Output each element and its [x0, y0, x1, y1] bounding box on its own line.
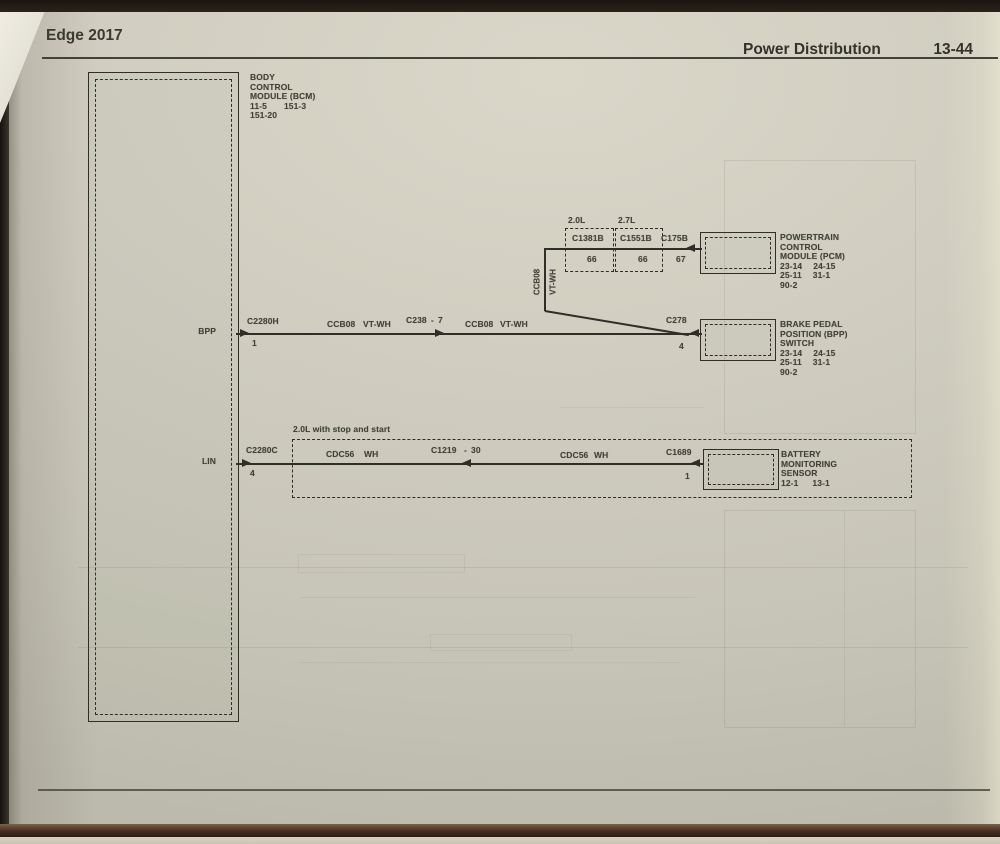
bcm-inner-dashed	[95, 79, 232, 715]
engine1-option-label: 2.0L	[568, 216, 585, 226]
c1689-pin: 1	[685, 472, 690, 482]
lin-seg1-circuit: CDC56	[326, 450, 354, 460]
bpp-pin-label: 1	[252, 339, 257, 349]
pcm-ref: 90-2	[780, 281, 845, 291]
engine2-option-label: 2.7L	[618, 216, 635, 226]
ghost-box	[724, 510, 916, 728]
c1551b-label: C1551B	[620, 234, 652, 244]
battery-sensor-ref: 13-1	[812, 479, 829, 489]
lin-seg1-color: WH	[364, 450, 378, 460]
battery-sensor-ref: 12-1	[781, 479, 798, 489]
bcm-bpp-connector-arrow	[240, 329, 249, 337]
bcm-ref: 151-3	[284, 102, 306, 112]
battery-sensor-label: BATTERY MONITORING SENSOR 12-1 13-1	[781, 450, 837, 488]
bpp-wire	[236, 333, 702, 335]
page-number: 13-44	[933, 41, 973, 59]
bpp-seg2-circuit: CCB08	[465, 320, 493, 330]
c1219-pin: 30	[471, 446, 481, 456]
c278-label: C278	[666, 316, 687, 326]
stop-start-option-label: 2.0L with stop and start	[293, 425, 390, 435]
ghost-box	[724, 160, 916, 434]
footer-rule	[38, 789, 990, 791]
pcm-branch-vertical-wire	[544, 249, 546, 311]
photo-background-top	[0, 0, 1000, 12]
c278-connector-arrow	[690, 329, 699, 337]
c238-sep: -	[431, 316, 434, 326]
bpp-switch-ref: 31-1	[813, 358, 830, 368]
book-binding-shadow	[0, 0, 9, 844]
bpp-connector-label: C2280H	[247, 317, 279, 327]
c1689-label: C1689	[666, 448, 692, 458]
c1219-label: C1219	[431, 446, 457, 456]
pcm-box	[700, 232, 776, 274]
pcm-branch-circuit-vertical: CCB08	[533, 269, 542, 295]
ghost-line	[300, 662, 680, 663]
c238-connector-arrow	[435, 329, 444, 337]
c1219-sep: -	[464, 446, 467, 456]
c1689-connector-arrow	[691, 459, 700, 467]
bpp-switch-inner-dashed	[705, 324, 771, 356]
ghost-box	[430, 634, 572, 651]
pcm-label: POWERTRAIN CONTROL MODULE (PCM) 23-14 24…	[780, 233, 845, 291]
battery-sensor-refs: 12-1 13-1	[781, 479, 837, 489]
ghost-line	[560, 407, 705, 408]
lin-seg2-circuit: CDC56	[560, 451, 588, 461]
c1381b-pin: 66	[587, 255, 597, 265]
ghost-line	[844, 510, 845, 726]
bcm-pin-lin-label: LIN	[178, 457, 216, 467]
c238-label: C238	[406, 316, 427, 326]
lin-seg2-color: WH	[594, 451, 608, 461]
ghost-box	[298, 554, 465, 573]
bcm-ref: 151-20	[250, 111, 315, 121]
page-bottom-edge-shadow	[0, 824, 1000, 837]
pcm-branch-color-vertical: VT-WH	[549, 269, 558, 295]
lin-pin-label: 4	[250, 469, 255, 479]
battery-sensor-box	[703, 449, 779, 490]
bcm-label: BODY CONTROL MODULE (BCM) 11-5 151-3 151…	[250, 73, 315, 121]
bpp-seg2-color: VT-WH	[500, 320, 528, 330]
header-right: Power Distribution 13-44	[743, 41, 973, 59]
c1551b-pin: 66	[638, 255, 648, 265]
bcm-pin-bpp-label: BPP	[178, 327, 216, 337]
bpp-seg1-circuit: CCB08	[327, 320, 355, 330]
photo-of-manual-page: { "photo": { "paper_color": "#cfccc0", "…	[0, 0, 1000, 844]
surface-below-page	[0, 837, 1000, 844]
page-title: Edge 2017	[46, 27, 123, 45]
section-title: Power Distribution	[743, 41, 881, 59]
pcm-ref: 31-1	[813, 271, 830, 281]
c238-pin: 7	[438, 316, 443, 326]
c278-pin: 4	[679, 342, 684, 352]
c175b-pin: 67	[676, 255, 686, 265]
manual-page: Edge 2017 Power Distribution 13-44 BODY …	[8, 10, 1000, 826]
c1381b-label: C1381B	[572, 234, 604, 244]
bpp-switch-label: BRAKE PEDAL POSITION (BPP) SWITCH 23-14 …	[780, 320, 848, 378]
ghost-line	[300, 597, 695, 598]
bpp-seg1-color: VT-WH	[363, 320, 391, 330]
lin-connector-label: C2280C	[246, 446, 278, 456]
pcm-inner-dashed	[705, 237, 771, 269]
bpp-switch-ref: 90-2	[780, 368, 848, 378]
battery-sensor-inner-dashed	[708, 454, 774, 485]
bpp-switch-box	[700, 319, 776, 361]
c175b-label: C175B	[661, 234, 688, 244]
pcm-connector-arrow	[686, 244, 695, 252]
bcm-lin-connector-arrow	[242, 459, 251, 467]
bcm-box	[88, 72, 239, 722]
c1219-connector-arrow	[462, 459, 471, 467]
